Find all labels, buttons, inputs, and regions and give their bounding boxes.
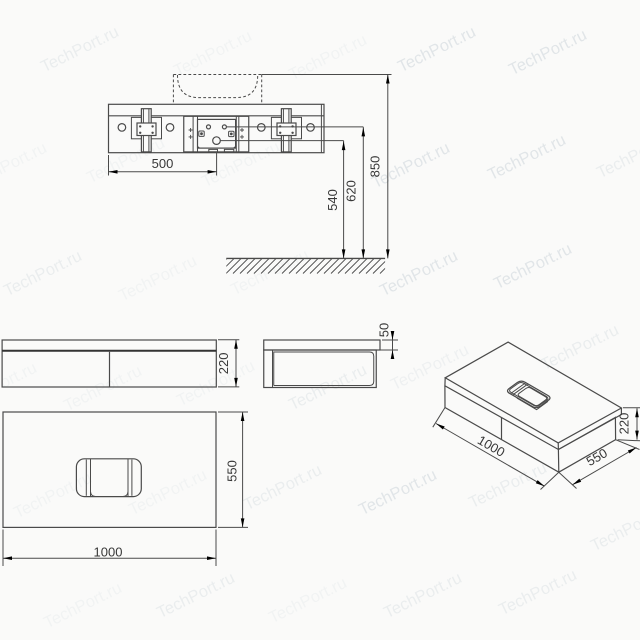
svg-text:850: 850 [368,156,383,178]
svg-text:540: 540 [325,189,340,211]
svg-text:1000: 1000 [94,545,123,560]
svg-text:220: 220 [216,353,231,375]
svg-text:50: 50 [377,323,392,337]
svg-text:620: 620 [344,180,359,202]
svg-text:500: 500 [152,156,174,171]
svg-text:550: 550 [224,460,239,482]
svg-text:220: 220 [617,413,632,435]
